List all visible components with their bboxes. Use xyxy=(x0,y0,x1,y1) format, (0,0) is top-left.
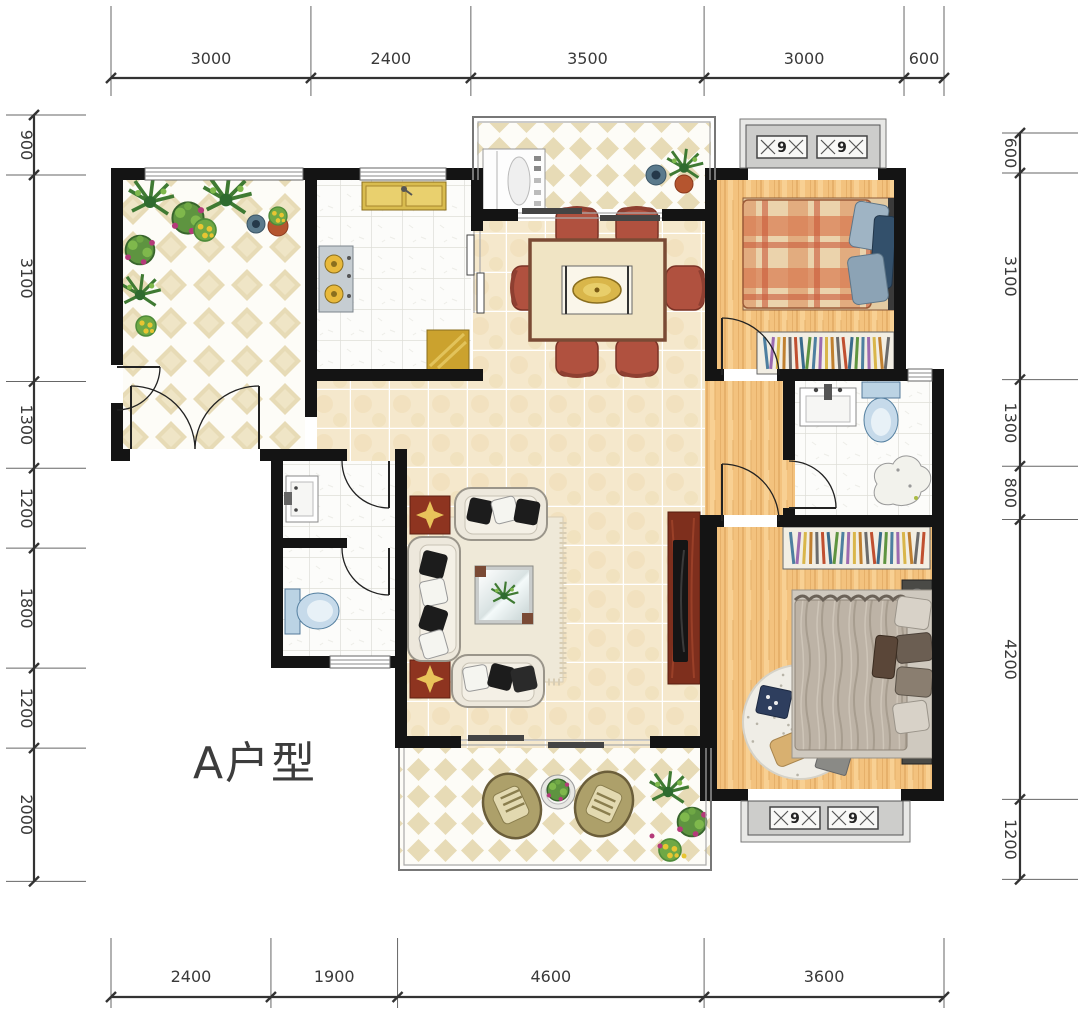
dim-label: 2400 xyxy=(171,967,212,986)
floor-plan-canvas: 9 9 9 9 A户型 3000240035003000600240019004… xyxy=(0,0,1080,1014)
window xyxy=(908,369,932,381)
dimension-bottom: 2400190046003600 xyxy=(106,938,949,1008)
dim-label: 3000 xyxy=(191,49,232,68)
dim-label: 1200 xyxy=(17,688,36,729)
dim-label: 3100 xyxy=(1001,256,1020,297)
pillow xyxy=(894,596,932,630)
dim-label: 3500 xyxy=(567,49,608,68)
window xyxy=(330,656,390,668)
book-spines xyxy=(764,337,888,369)
dim-label: 2000 xyxy=(17,794,36,835)
window xyxy=(145,168,303,180)
unit-type-label: A户型 xyxy=(193,738,317,789)
dimension-left: 900310013001200180012002000 xyxy=(6,110,86,886)
bedroom1-furniture xyxy=(743,198,897,374)
dim-label: 900 xyxy=(17,130,36,161)
bay-window-glyph: 9 xyxy=(848,811,858,827)
dim-label: 1300 xyxy=(1001,403,1020,444)
pillow xyxy=(513,498,541,526)
corridor-floor xyxy=(705,381,795,515)
pillow xyxy=(892,700,930,734)
dim-label: 4600 xyxy=(530,967,571,986)
bay-window-glyph: 9 xyxy=(777,140,787,156)
dim-label: 3600 xyxy=(804,967,845,986)
window xyxy=(360,168,446,180)
pillow xyxy=(847,253,889,306)
dim-label: 4200 xyxy=(1001,639,1020,680)
pillow xyxy=(510,665,538,693)
dim-label: 1900 xyxy=(314,967,355,986)
dim-label: 2400 xyxy=(371,49,412,68)
flower-pot-icon xyxy=(675,175,693,193)
pillow xyxy=(462,664,490,692)
pillow xyxy=(872,635,898,679)
dim-label: 600 xyxy=(909,49,940,68)
pillow xyxy=(895,632,934,664)
dim-label: 1200 xyxy=(1001,819,1020,860)
dimension-top: 3000240035003000600 xyxy=(106,6,949,96)
dim-label: 600 xyxy=(1001,138,1020,169)
pillow xyxy=(419,578,449,608)
bay-window: 9 9 xyxy=(741,801,910,842)
dim-label: 1200 xyxy=(17,488,36,529)
dim-label: 3100 xyxy=(17,258,36,299)
toilet-icon xyxy=(862,382,900,442)
pillow xyxy=(895,666,933,697)
dim-label: 1300 xyxy=(17,405,36,446)
dim-label: 800 xyxy=(1001,478,1020,509)
bay-window-glyph: 9 xyxy=(790,811,800,827)
bay-window-glyph: 9 xyxy=(837,140,847,156)
dim-label: 3000 xyxy=(784,49,825,68)
bay-window: 9 9 xyxy=(740,119,886,168)
pillow xyxy=(466,497,494,525)
dim-label: 1800 xyxy=(17,588,36,629)
dimension-right: 6003100130080042001200 xyxy=(1001,128,1078,884)
floor-plan-page: 9 9 9 9 A户型 3000240035003000600240019004… xyxy=(0,0,1080,1014)
pillow xyxy=(755,685,792,719)
